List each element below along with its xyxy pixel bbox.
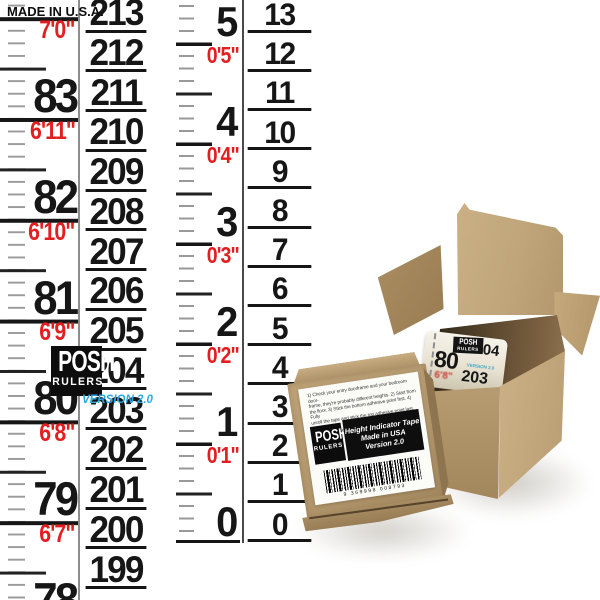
posh-rulers-logo: POSH RULERS	[51, 346, 102, 396]
ruler-strip1-feet-column: 7'0"6'11"6'10"6'9"6'8"6'7"	[0, 0, 77, 600]
closed-box: 1) Check your entry doorframe and your b…	[285, 348, 471, 560]
logo-posh-text: POSH	[456, 337, 480, 347]
feet-inches-label: 6'7"	[40, 524, 75, 545]
feet-inches-label: 0'5"	[207, 46, 239, 65]
product-image: 838281807978 7'0"6'11"6'10"6'9"6'8"6'7" …	[0, 0, 600, 600]
logo-posh-text: POSH	[314, 428, 339, 444]
cm-number: 6	[248, 274, 312, 307]
version-label: VERSION 2.0	[82, 394, 153, 406]
label-posh-logo: POSH RULERS	[310, 423, 346, 465]
ruler-strip1-cm-column: 2132122112102092082072062052042032022012…	[84, 0, 148, 600]
cm-number: 201	[86, 473, 147, 510]
cm-number: 5	[248, 314, 312, 347]
feet-inches-label: 6'11"	[30, 121, 75, 142]
cm-number: 8	[248, 196, 312, 229]
ruler-strip2-feet-column: 0'5"0'4"0'3"0'2"0'1"	[176, 0, 240, 543]
feet-inches-label: 6'8"	[40, 423, 75, 444]
cm-number: 200	[86, 513, 147, 550]
feet-inches-label: 6'9"	[40, 322, 75, 343]
ruler-strip2-divider	[242, 0, 244, 543]
cm-number: 7	[248, 235, 312, 268]
cm-number: 210	[86, 115, 147, 152]
feet-inches-label: 0'4"	[207, 146, 239, 165]
logo-rulers-text: RULERS	[52, 376, 100, 388]
cm-number: 207	[86, 235, 147, 272]
cm-number: 13	[248, 0, 312, 33]
cm-number: 208	[86, 195, 147, 232]
cm-number: 211	[86, 76, 147, 113]
cm-number: 9	[248, 157, 312, 190]
feet-inches-label: 0'1"	[207, 446, 239, 465]
ruler-strip1-divider	[78, 0, 80, 600]
feet-inches-label: 0'2"	[207, 346, 239, 365]
box-lid-flap	[457, 203, 563, 315]
product-label: 1) Check your entry doorframe and your b…	[298, 372, 435, 506]
tape-roll-number: 04	[482, 341, 501, 360]
logo-posh-text: POSH	[58, 348, 95, 376]
feet-inches-label: 6'10"	[29, 222, 75, 243]
cm-number: 206	[86, 274, 147, 311]
cm-number: 209	[86, 155, 147, 192]
box-left-flap	[372, 245, 445, 335]
tape-roll-number: 203	[460, 368, 489, 389]
cm-number: 202	[86, 433, 147, 470]
cm-number: 212	[86, 36, 147, 73]
feet-inches-label: 0'3"	[207, 246, 239, 265]
cm-number: 10	[248, 118, 312, 151]
cm-number: 12	[248, 39, 312, 72]
feet-inches-label: 7'0"	[40, 20, 75, 41]
cm-number: 199	[86, 553, 147, 590]
made-in-usa-text: MADE IN U.S.A.	[7, 4, 104, 19]
cm-number: 11	[248, 78, 312, 111]
